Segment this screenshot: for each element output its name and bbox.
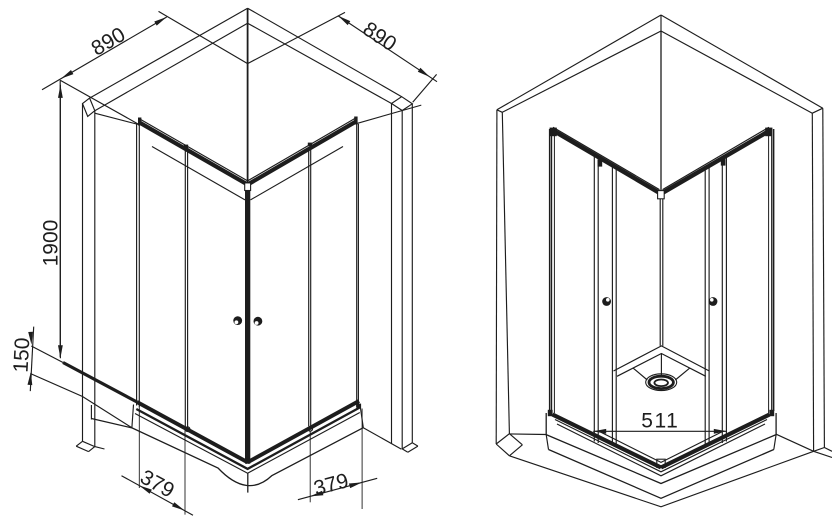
svg-text:1900: 1900 [39, 220, 62, 267]
svg-text:511: 511 [641, 410, 679, 433]
svg-text:150: 150 [10, 337, 35, 373]
